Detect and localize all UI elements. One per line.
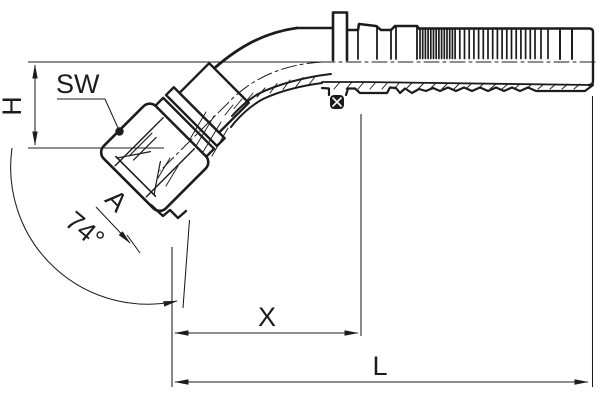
a-terminator-stroke xyxy=(127,235,140,253)
stem-serrations-medium xyxy=(460,29,548,59)
fitting-body-block xyxy=(179,63,248,132)
label-l: L xyxy=(372,351,387,381)
stem-serrations-dense xyxy=(420,29,455,59)
fitting-body xyxy=(97,13,597,219)
label-sw: SW xyxy=(56,69,100,99)
label-x: X xyxy=(258,302,276,332)
label-a: A xyxy=(99,184,133,218)
technical-drawing-page: H SW A 74° X L xyxy=(0,0,600,400)
label-angle: 74° xyxy=(59,205,110,254)
cone-flank-extension xyxy=(183,220,190,308)
label-h: H xyxy=(0,96,27,116)
hose-fitting-45deg-drawing: H SW A 74° X L xyxy=(0,0,600,400)
sw-leader-dot xyxy=(115,127,123,135)
stem-end-edges xyxy=(560,29,572,59)
sw-leader-line xyxy=(57,99,118,128)
